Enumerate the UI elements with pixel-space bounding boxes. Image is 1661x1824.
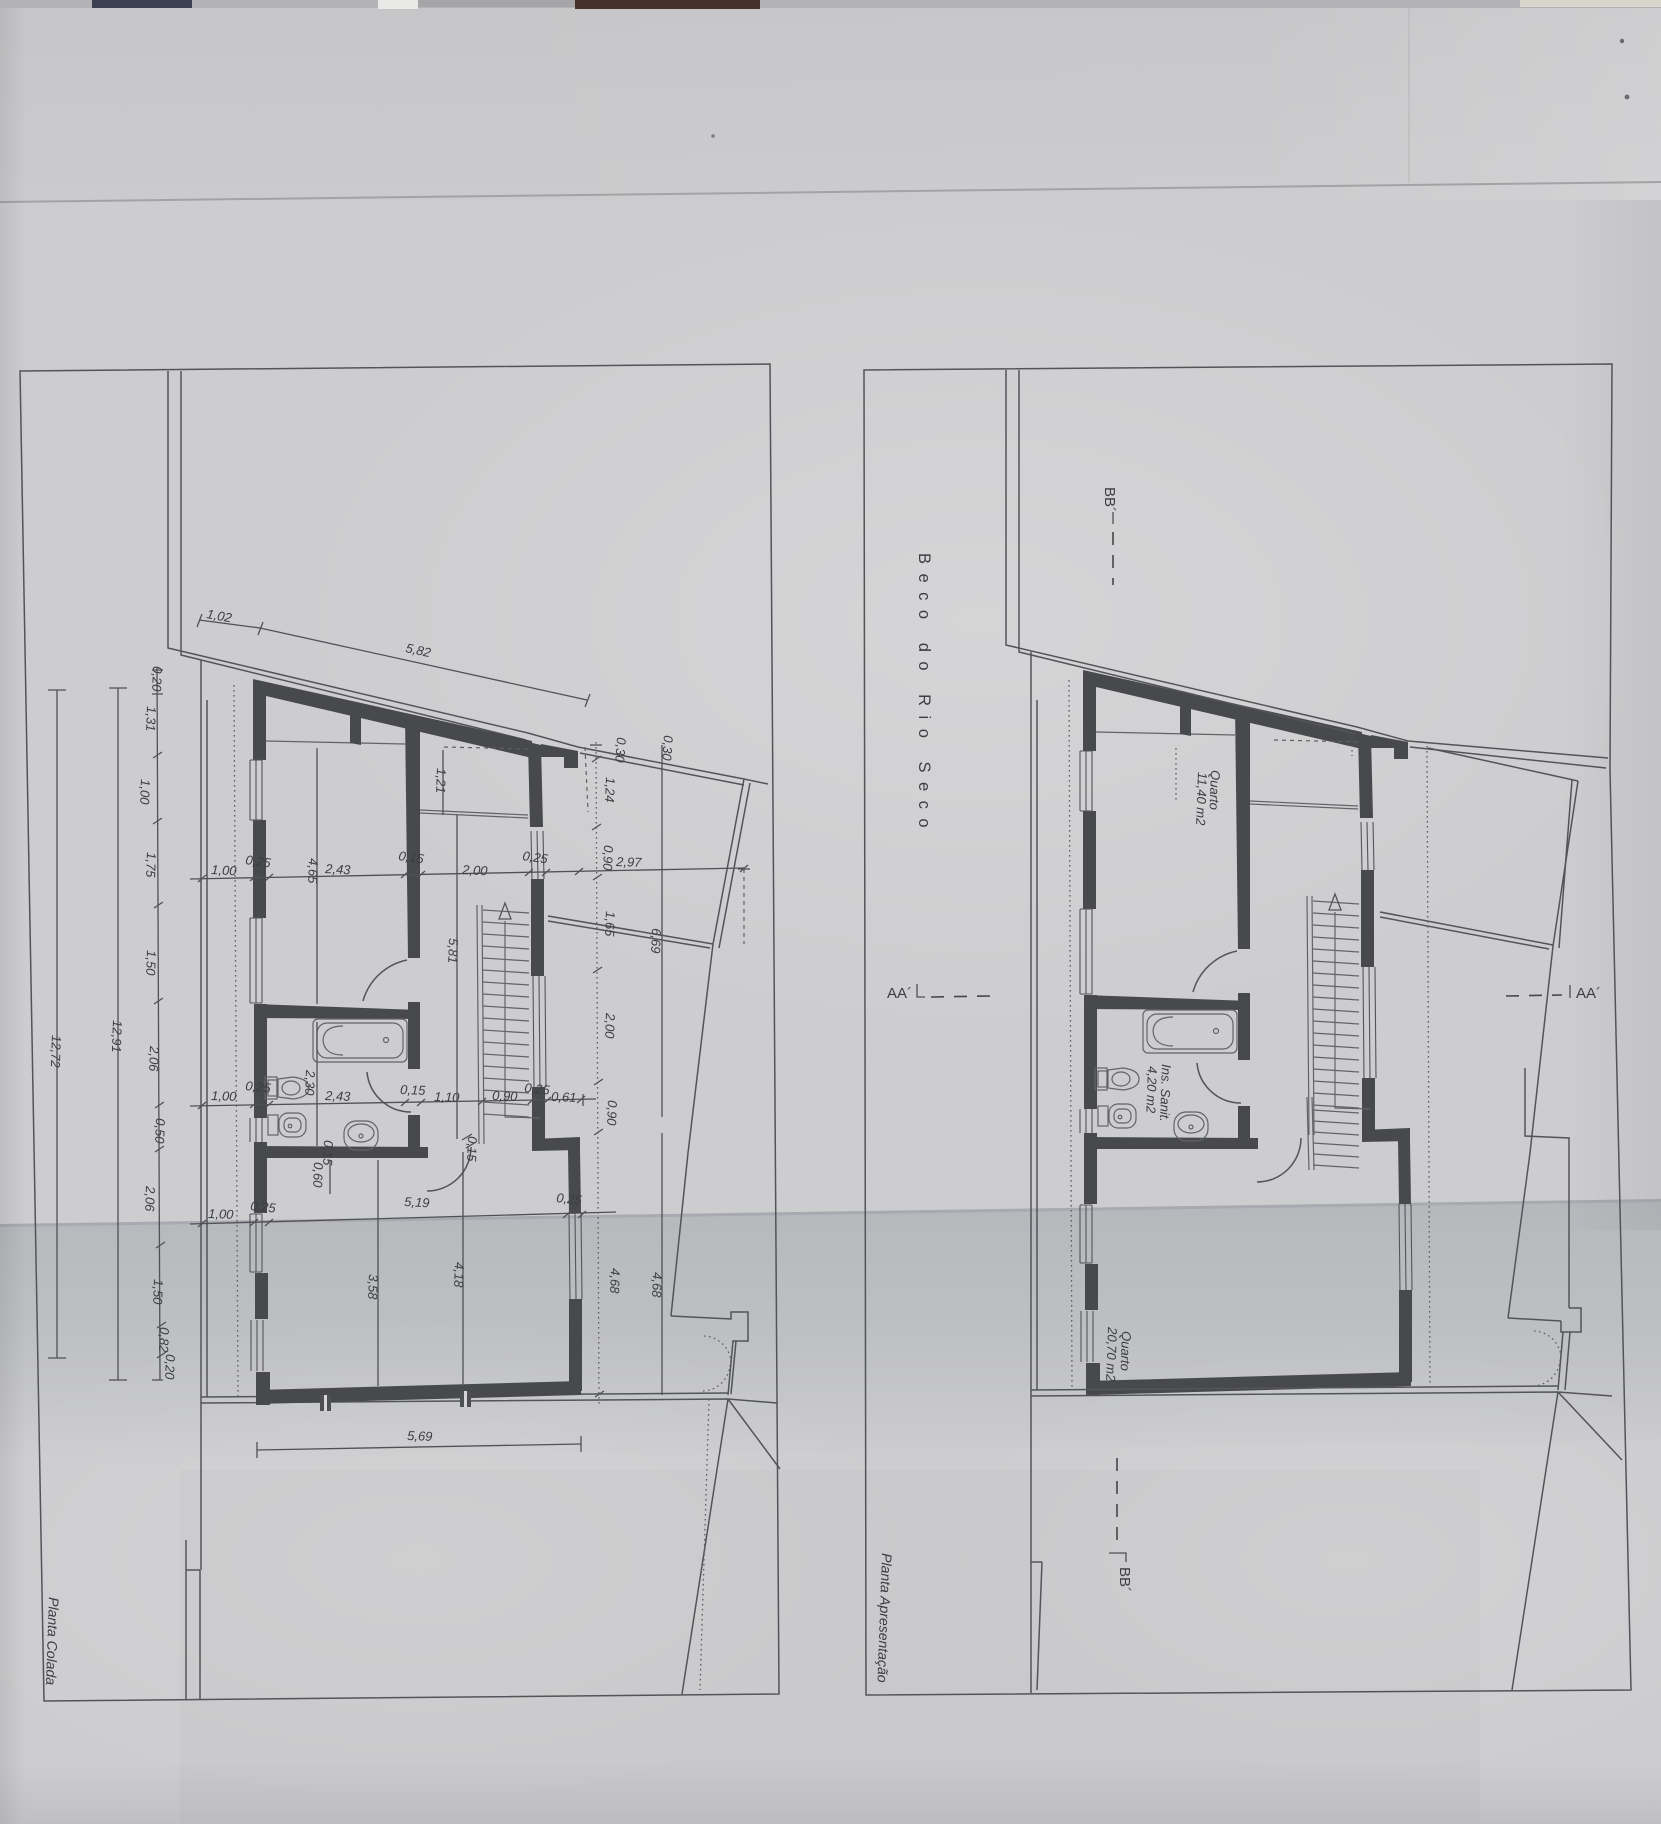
svg-text:4,18: 4,18 bbox=[451, 1262, 467, 1289]
svg-text:1,00: 1,00 bbox=[211, 1088, 238, 1104]
svg-text:0,15: 0,15 bbox=[320, 1140, 336, 1167]
svg-text:0,90: 0,90 bbox=[492, 1088, 519, 1104]
svg-text:2,30: 2,30 bbox=[302, 1069, 318, 1097]
svg-text:BB´: BB´ bbox=[1101, 487, 1118, 512]
svg-text:1,50: 1,50 bbox=[150, 1279, 166, 1306]
svg-text:1,00: 1,00 bbox=[137, 779, 153, 806]
svg-text:AA´: AA´ bbox=[1576, 985, 1601, 1002]
svg-text:1,00: 1,00 bbox=[208, 1206, 235, 1222]
svg-text:Beco do Rio Seco: Beco do Rio Seco bbox=[915, 553, 933, 837]
svg-text:5,81: 5,81 bbox=[445, 938, 461, 964]
svg-text:1,21: 1,21 bbox=[433, 768, 449, 794]
svg-text:4,68: 4,68 bbox=[607, 1268, 623, 1295]
svg-text:2,00: 2,00 bbox=[461, 862, 489, 878]
svg-text:1,00: 1,00 bbox=[211, 862, 238, 878]
svg-text:0,25: 0,25 bbox=[250, 1198, 277, 1216]
svg-text:0,60: 0,60 bbox=[310, 1162, 326, 1189]
svg-text:0,20: 0,20 bbox=[162, 1354, 178, 1381]
svg-text:1,75: 1,75 bbox=[143, 852, 159, 879]
svg-text:20,70 m2: 20,70 m2 bbox=[1103, 1326, 1120, 1382]
svg-text:0,25: 0,25 bbox=[245, 1078, 272, 1096]
svg-text:0,15: 0,15 bbox=[400, 1082, 427, 1098]
svg-text:2,97: 2,97 bbox=[615, 854, 643, 870]
svg-text:1,65: 1,65 bbox=[602, 911, 618, 938]
svg-text:0,25: 0,25 bbox=[524, 1080, 551, 1098]
svg-text:3,58: 3,58 bbox=[365, 1274, 381, 1301]
svg-text:1,24: 1,24 bbox=[602, 777, 618, 803]
svg-text:4,20 m2: 4,20 m2 bbox=[1143, 1066, 1160, 1114]
svg-text:11,40 m2: 11,40 m2 bbox=[1193, 772, 1210, 826]
svg-text:0,90: 0,90 bbox=[600, 845, 616, 872]
svg-text:12,72: 12,72 bbox=[48, 1035, 64, 1069]
svg-text:12,91: 12,91 bbox=[109, 1020, 125, 1053]
svg-text:2,00: 2,00 bbox=[602, 1012, 618, 1040]
svg-text:2,43: 2,43 bbox=[324, 1088, 352, 1104]
svg-text:0,50: 0,50 bbox=[152, 1118, 168, 1145]
svg-text:0,82: 0,82 bbox=[156, 1327, 172, 1354]
svg-text:0,61: 0,61 bbox=[551, 1089, 577, 1105]
svg-text:0,20: 0,20 bbox=[149, 666, 165, 693]
svg-text:4,65: 4,65 bbox=[305, 858, 321, 885]
svg-text:BB´: BB´ bbox=[1116, 1567, 1133, 1592]
svg-text:0,30: 0,30 bbox=[612, 737, 629, 764]
svg-text:1,31: 1,31 bbox=[143, 706, 159, 732]
svg-text:5,19: 5,19 bbox=[404, 1194, 430, 1210]
svg-text:AA´: AA´ bbox=[887, 985, 912, 1002]
svg-text:2,06: 2,06 bbox=[146, 1045, 162, 1073]
svg-text:0,25: 0,25 bbox=[556, 1190, 583, 1208]
svg-text:0,15: 0,15 bbox=[464, 1136, 480, 1163]
svg-text:4,68: 4,68 bbox=[649, 1272, 665, 1299]
svg-text:6,69: 6,69 bbox=[648, 928, 664, 954]
svg-text:1,50: 1,50 bbox=[143, 950, 159, 977]
svg-text:Planta Colada: Planta Colada bbox=[43, 1597, 62, 1686]
svg-text:0,90: 0,90 bbox=[604, 1100, 620, 1127]
svg-text:2,43: 2,43 bbox=[324, 861, 352, 877]
svg-text:5,69: 5,69 bbox=[407, 1428, 433, 1444]
svg-text:2,06: 2,06 bbox=[142, 1185, 158, 1213]
